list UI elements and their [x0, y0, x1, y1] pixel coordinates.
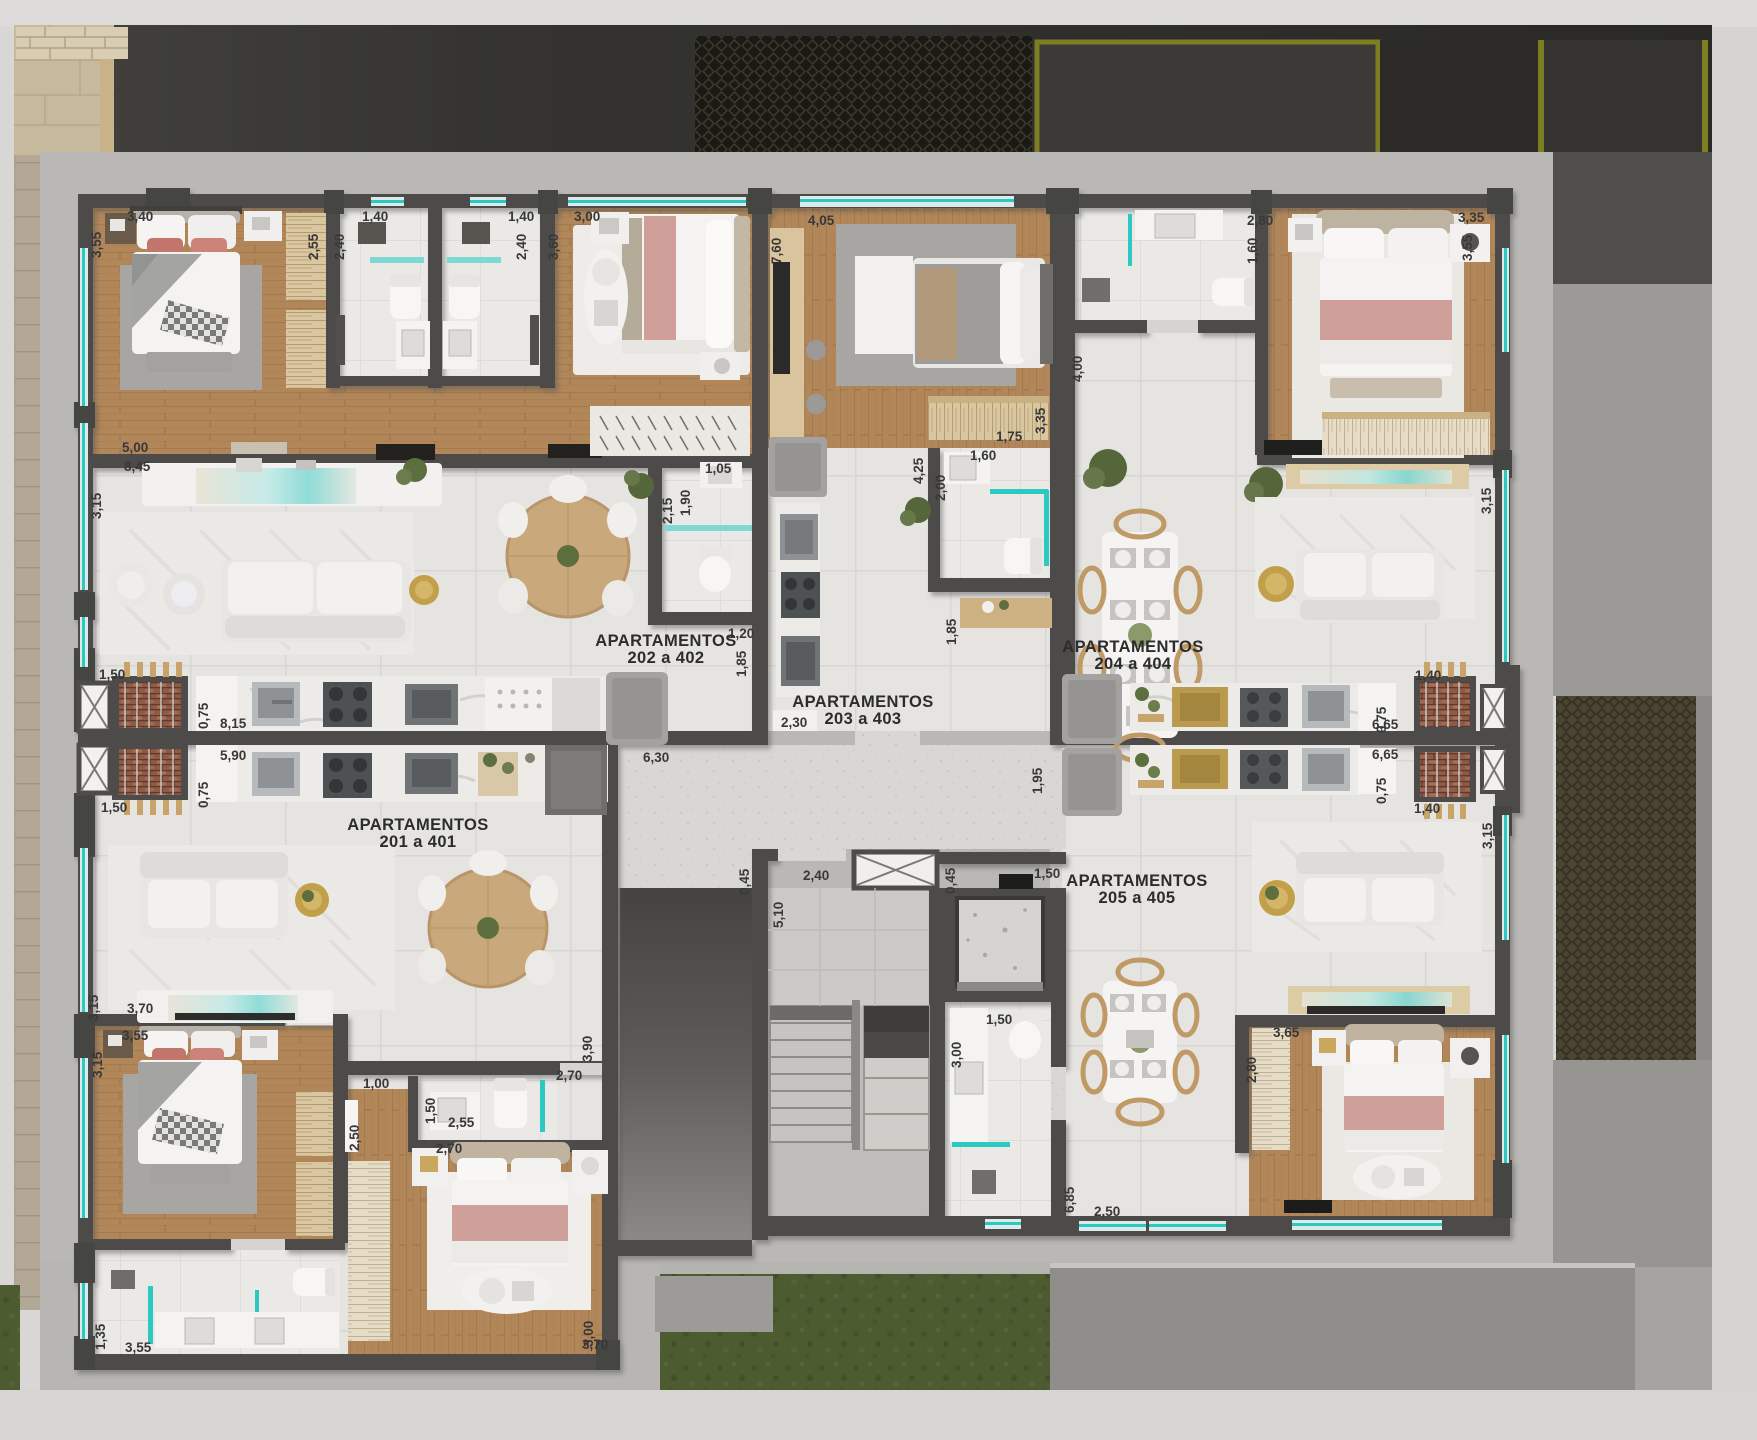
- svg-text:2,55: 2,55: [306, 233, 321, 260]
- svg-text:3,90: 3,90: [580, 1036, 595, 1062]
- svg-text:204 a 404: 204 a 404: [1094, 655, 1171, 673]
- svg-text:2,55: 2,55: [448, 1115, 475, 1130]
- svg-text:3,65: 3,65: [1273, 1025, 1300, 1040]
- svg-text:8,15: 8,15: [220, 716, 247, 731]
- svg-text:3,35: 3,35: [1033, 407, 1048, 434]
- svg-text:201 a 401: 201 a 401: [379, 833, 456, 851]
- svg-text:2,15: 2,15: [660, 497, 675, 524]
- svg-text:3,55: 3,55: [1460, 234, 1475, 261]
- svg-text:3,35: 3,35: [1458, 210, 1485, 225]
- svg-text:1,50: 1,50: [986, 1012, 1012, 1027]
- svg-text:0,75: 0,75: [1374, 777, 1389, 804]
- svg-text:1,50: 1,50: [99, 667, 125, 682]
- svg-text:1,05: 1,05: [705, 461, 732, 476]
- svg-text:5,00: 5,00: [122, 440, 148, 455]
- svg-text:1,50: 1,50: [423, 1098, 438, 1124]
- svg-text:1,00: 1,00: [363, 1076, 389, 1091]
- svg-text:3,60: 3,60: [546, 234, 561, 260]
- svg-text:1,75: 1,75: [996, 429, 1023, 444]
- svg-text:7,60: 7,60: [769, 238, 784, 264]
- svg-text:1,50: 1,50: [101, 800, 127, 815]
- svg-text:2,00: 2,00: [933, 475, 948, 501]
- svg-text:2,40: 2,40: [514, 234, 529, 260]
- svg-text:3,70: 3,70: [127, 1001, 153, 1016]
- svg-text:2,30: 2,30: [781, 715, 807, 730]
- svg-text:3,15: 3,15: [1480, 822, 1495, 849]
- svg-text:2,40: 2,40: [332, 234, 347, 260]
- svg-text:3,70: 3,70: [582, 1337, 608, 1352]
- svg-text:3,40: 3,40: [127, 209, 153, 224]
- svg-text:5,90: 5,90: [220, 748, 246, 763]
- svg-text:3,55: 3,55: [122, 1028, 149, 1043]
- svg-text:3,15: 3,15: [1479, 487, 1494, 514]
- svg-text:1,35: 1,35: [93, 1323, 108, 1350]
- svg-text:4,00: 4,00: [1070, 356, 1085, 382]
- svg-text:APARTAMENTOS: APARTAMENTOS: [595, 632, 736, 650]
- svg-text:2,70: 2,70: [436, 1141, 462, 1156]
- svg-text:1,50: 1,50: [1034, 866, 1060, 881]
- svg-text:1,85: 1,85: [734, 650, 749, 677]
- svg-text:3,15: 3,15: [86, 994, 101, 1021]
- svg-text:3,15: 3,15: [90, 1051, 105, 1078]
- svg-text:APARTAMENTOS: APARTAMENTOS: [1066, 872, 1207, 890]
- svg-text:1,40: 1,40: [362, 209, 388, 224]
- svg-text:4,05: 4,05: [808, 213, 835, 228]
- svg-text:3,00: 3,00: [574, 209, 600, 224]
- svg-text:3,15: 3,15: [89, 492, 104, 519]
- svg-text:6,30: 6,30: [643, 750, 669, 765]
- svg-text:1,40: 1,40: [1415, 668, 1441, 683]
- svg-text:0,75: 0,75: [196, 702, 211, 729]
- svg-text:1,90: 1,90: [678, 490, 693, 516]
- svg-text:1,85: 1,85: [944, 618, 959, 645]
- svg-text:0,75: 0,75: [196, 781, 211, 808]
- svg-text:3,00: 3,00: [949, 1042, 964, 1068]
- svg-text:5,10: 5,10: [771, 902, 786, 928]
- svg-text:3,55: 3,55: [89, 231, 104, 258]
- svg-text:2,50: 2,50: [347, 1125, 362, 1151]
- svg-text:8,45: 8,45: [124, 459, 151, 474]
- svg-text:1,95: 1,95: [1030, 767, 1045, 794]
- svg-text:APARTAMENTOS: APARTAMENTOS: [792, 693, 933, 711]
- svg-text:3,55: 3,55: [125, 1340, 152, 1355]
- svg-text:0,45: 0,45: [737, 868, 752, 895]
- svg-text:203 a 403: 203 a 403: [824, 710, 901, 728]
- svg-text:6,65: 6,65: [1372, 717, 1399, 732]
- svg-text:2,80: 2,80: [1247, 213, 1273, 228]
- svg-text:0,45: 0,45: [943, 867, 958, 894]
- svg-text:2,40: 2,40: [803, 868, 829, 883]
- svg-text:2,80: 2,80: [1244, 1057, 1259, 1083]
- svg-text:1,40: 1,40: [508, 209, 534, 224]
- svg-text:205 a 405: 205 a 405: [1098, 889, 1175, 907]
- svg-text:202 a 402: 202 a 402: [627, 649, 704, 667]
- svg-text:4,25: 4,25: [911, 457, 926, 484]
- svg-text:1,60: 1,60: [1245, 238, 1260, 264]
- svg-text:6,85: 6,85: [1062, 1186, 1077, 1213]
- svg-text:6,65: 6,65: [1372, 747, 1399, 762]
- svg-text:APARTAMENTOS: APARTAMENTOS: [1062, 638, 1203, 656]
- svg-text:2,70: 2,70: [556, 1068, 582, 1083]
- svg-text:APARTAMENTOS: APARTAMENTOS: [347, 816, 488, 834]
- svg-text:1,40: 1,40: [1414, 801, 1440, 816]
- svg-text:2,50: 2,50: [1094, 1204, 1120, 1219]
- svg-text:1,60: 1,60: [970, 448, 996, 463]
